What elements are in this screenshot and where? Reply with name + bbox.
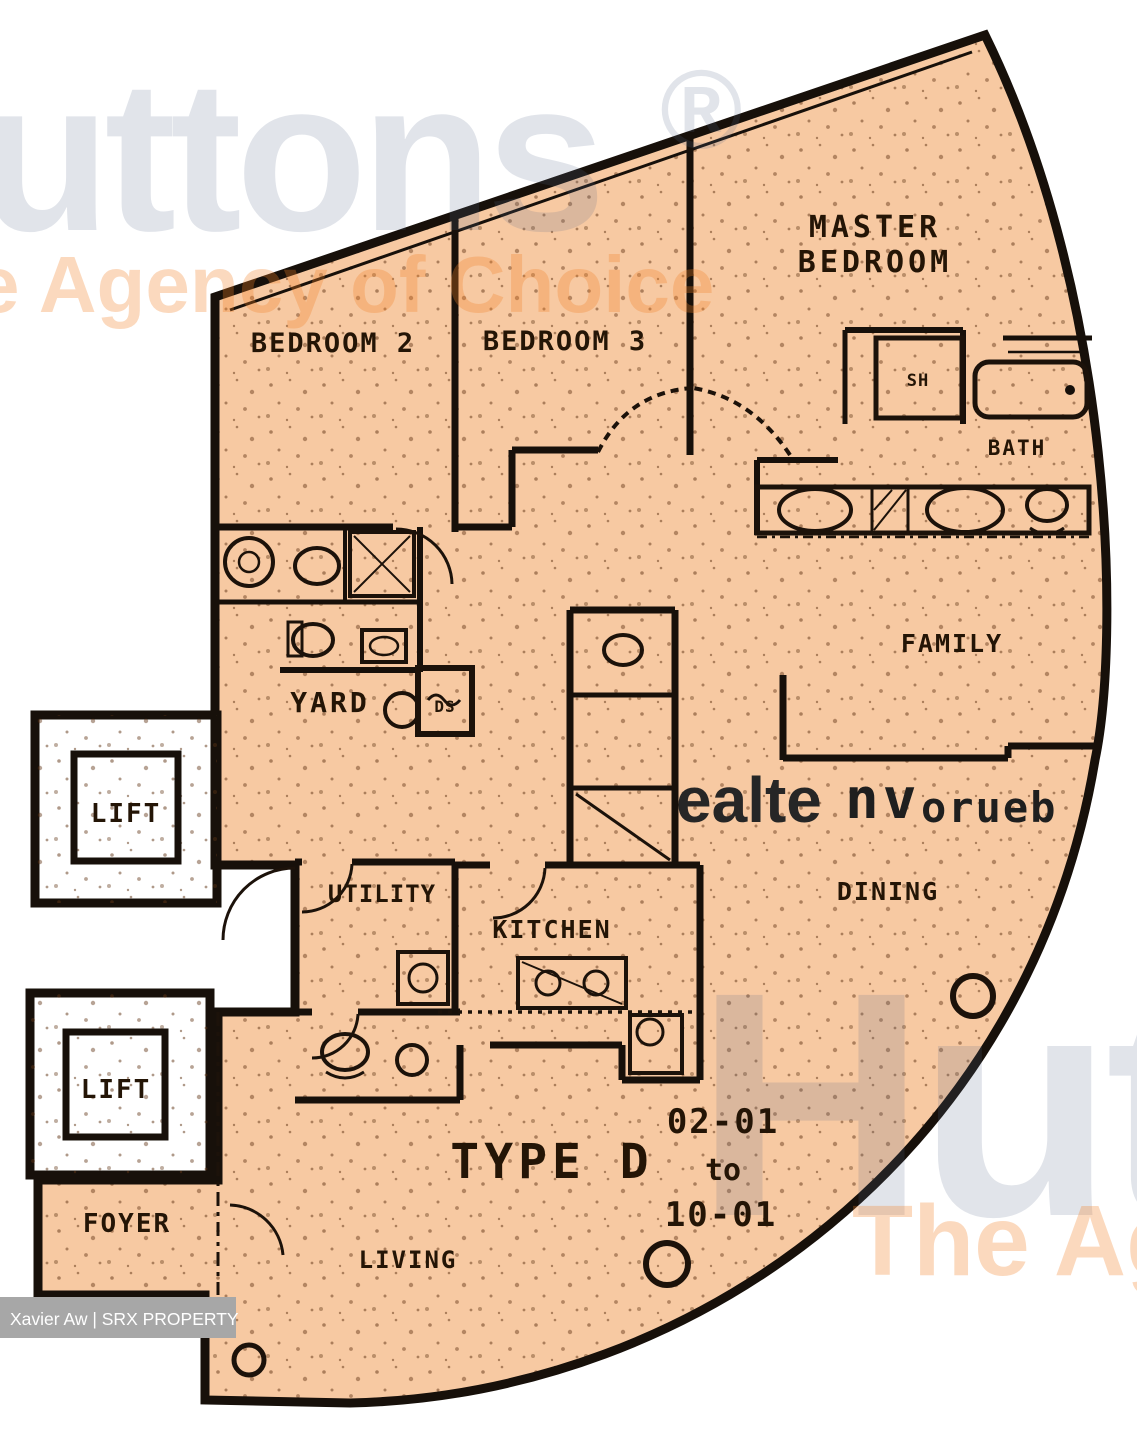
watermark-tagline-top: e Agency of Choice <box>0 240 714 329</box>
stamp-part-3: orueb <box>921 783 1057 832</box>
type-label: TYPE D <box>450 1134 653 1190</box>
room-label-foyer: FOYER <box>83 1209 171 1239</box>
room-label-bedroom3: BEDROOM 3 <box>483 326 647 357</box>
floorplan-svg: Huttons ® e Agency of Choice Huttons The… <box>0 0 1137 1440</box>
room-label-master-line2: BEDROOM <box>798 245 952 280</box>
unit-range-from: 02-01 <box>667 1102 779 1142</box>
stamp-part-2: nv <box>845 767 920 832</box>
stamp-part-1: ealte <box>676 764 822 836</box>
attribution-text: Xavier Aw | SRX PROPERTY <box>10 1309 239 1329</box>
room-label-bedroom2: BEDROOM 2 <box>251 328 415 359</box>
room-label-living: LIVING <box>359 1246 458 1274</box>
room-label-ds: DS <box>434 697 455 716</box>
room-label-lift-upper: LIFT <box>91 799 162 829</box>
unit-range-connector: to <box>705 1153 741 1188</box>
room-label-kitchen: KITCHEN <box>492 915 611 944</box>
attribution-bar: Xavier Aw | SRX PROPERTY <box>0 1297 239 1338</box>
unit-range-to: 10-01 <box>665 1195 777 1235</box>
room-label-lift-lower: LIFT <box>81 1075 152 1105</box>
room-label-shower: SH <box>907 371 929 391</box>
room-label-yard: YARD <box>290 686 369 719</box>
room-label-master-line1: MASTER <box>809 210 941 245</box>
watermark-tagline-bottom: The Ag <box>852 1185 1137 1297</box>
room-label-utility: UTILITY <box>328 880 436 908</box>
room-label-bath: BATH <box>988 436 1047 460</box>
room-label-dining: DINING <box>837 877 939 906</box>
floor-plan-page: Huttons ® e Agency of Choice Huttons The… <box>0 0 1137 1440</box>
room-label-family: FAMILY <box>901 629 1003 658</box>
watermark-registered-icon: ® <box>660 47 743 172</box>
